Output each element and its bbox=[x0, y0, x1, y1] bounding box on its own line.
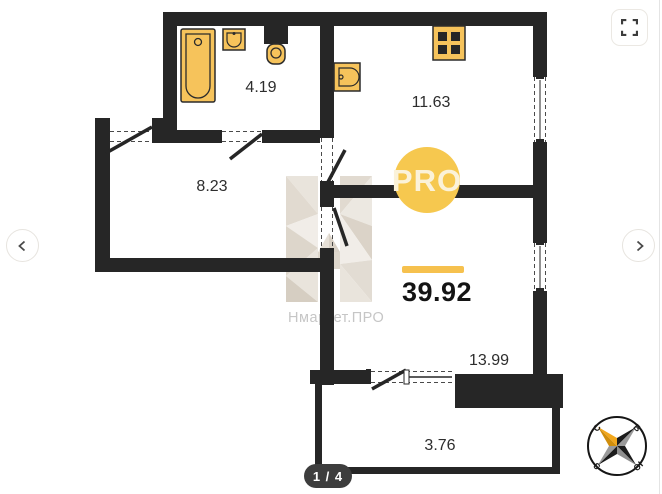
stove-icon bbox=[433, 26, 465, 60]
kitchen-sink-icon bbox=[334, 63, 360, 91]
fullscreen-button[interactable] bbox=[611, 9, 648, 46]
svg-text:PRO: PRO bbox=[392, 163, 462, 198]
window-living-room bbox=[535, 240, 546, 293]
floorplan-drawing: Нмаркет.ПРО bbox=[0, 0, 662, 494]
area-label-hallway: 8.23 bbox=[196, 178, 227, 196]
area-label-balcony: 3.76 bbox=[424, 437, 455, 455]
scroll-edge-divider bbox=[659, 0, 660, 494]
bathtub-icon bbox=[181, 29, 215, 102]
area-label-living-room: 13.99 bbox=[469, 352, 509, 370]
door-balcony bbox=[371, 370, 452, 389]
window-kitchen bbox=[535, 74, 546, 144]
door-entrance bbox=[106, 127, 152, 153]
total-area-block: 39.92 bbox=[402, 266, 472, 308]
page-indicator: 1 / 4 bbox=[304, 464, 352, 488]
area-label-kitchen: 11.63 bbox=[412, 94, 451, 112]
image-viewer: Нмаркет.ПРО bbox=[0, 0, 662, 494]
compass-rose-icon: С В Ю З bbox=[586, 415, 650, 479]
area-label-bathroom: 4.19 bbox=[245, 79, 276, 97]
total-area-accent-bar bbox=[402, 266, 464, 273]
door-kitchen bbox=[322, 138, 346, 182]
chevron-right-icon bbox=[631, 238, 647, 254]
fullscreen-expand-icon bbox=[621, 19, 638, 36]
prev-image-button[interactable] bbox=[6, 229, 39, 262]
next-image-button[interactable] bbox=[622, 229, 655, 262]
pro-badge: PRO bbox=[392, 147, 462, 213]
total-area-value: 39.92 bbox=[402, 277, 472, 308]
brand-watermark-text: Нмаркет.ПРО bbox=[288, 310, 384, 326]
chevron-left-icon bbox=[15, 238, 31, 254]
door-bathroom bbox=[222, 132, 262, 160]
toilet-icon bbox=[264, 26, 288, 64]
bathroom-sink-icon bbox=[223, 29, 245, 50]
